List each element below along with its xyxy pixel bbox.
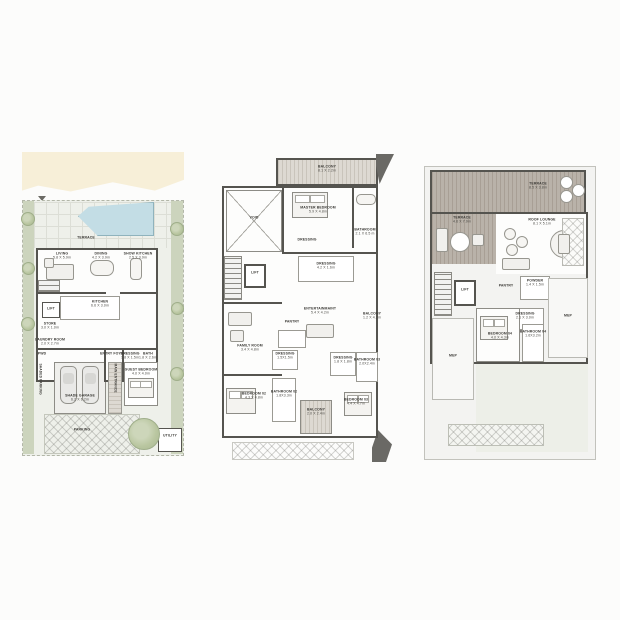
roof-lounge-label: ROOF LOUNGE8.1 X 5.1m <box>528 218 555 226</box>
tree-icon <box>22 262 35 275</box>
tree-icon <box>171 302 184 315</box>
garden-tree <box>128 418 160 450</box>
bathroom-03-label: BATHROOM 032.0X2.4m <box>354 358 380 366</box>
entertainment-label: ENTERTAINMAINT5.4 X 4.2m <box>304 307 336 315</box>
terrace-label: TERRACE <box>77 236 95 240</box>
guest-bed <box>128 378 154 398</box>
facade-fin <box>376 154 394 184</box>
pantry-area <box>278 330 306 348</box>
ff-dressing-a-label: DRESSING <box>297 238 316 242</box>
driveway <box>44 414 140 454</box>
tree-icon <box>21 317 35 331</box>
pouf <box>506 244 518 256</box>
tree-icon <box>170 367 184 381</box>
terrace-seat <box>472 234 484 246</box>
ground-floor-plan: TERRACE LIVING5.8 X 5.9m DINING4.2 X 3.9… <box>20 152 188 468</box>
gf-dressing-label: DRESSING1.8 X 1.5m <box>120 352 139 360</box>
ff-stairs <box>224 256 242 300</box>
stairs <box>38 280 60 292</box>
utility-box <box>158 428 182 452</box>
roof-lift-shaft <box>454 280 476 306</box>
bedroom-02-label: BEDROOM 024.3 X 4.8m <box>242 392 266 400</box>
landscape-strip-right <box>171 201 183 454</box>
kitchen-counter <box>60 296 120 320</box>
ff-pantry-label: PANTRY <box>285 320 300 324</box>
ff-balcony-bottom <box>300 400 332 434</box>
kitchen-label: KITCHEN6.6 X 3.0m <box>91 300 109 308</box>
first-floor-plan: BALCONY8.1 X 2.2m VOID MASTER BEDROOM5.9… <box>214 152 398 470</box>
dining-table <box>90 260 114 276</box>
gf-bath-label: BATH1.8 X 2.6m <box>139 352 157 360</box>
master-bedroom-label: MASTER BEDROOM5.9 X 4.8m <box>300 206 335 214</box>
roof-stairs <box>434 272 452 316</box>
ff-dressing-c-label: DRESSING1.5X1.5m <box>275 352 294 360</box>
island <box>130 258 142 280</box>
planter <box>560 176 573 189</box>
tree-icon <box>21 212 35 226</box>
mep-left-area <box>432 318 474 400</box>
shaded-parking-label: SHADED PARKING <box>38 363 42 394</box>
mep-right-area <box>548 278 588 358</box>
terrace-seat <box>436 228 448 252</box>
shade-garage-label: SHADE GARAGE6.2 X 6.2m <box>65 394 95 402</box>
sofa <box>228 312 252 326</box>
terrace-top-label: TERRACE8.5 X 3.8m <box>529 182 547 190</box>
lounger <box>558 234 570 254</box>
sofa <box>230 330 244 342</box>
planter <box>572 184 585 197</box>
lift-label: LIFT <box>47 307 55 311</box>
pouf <box>516 236 528 248</box>
ff-dressing-d-label: DRESSING1.8 X 1.8m <box>333 356 352 364</box>
main-entrance-label: MAIN ENTRANCE <box>113 364 117 393</box>
lounge-sofa <box>502 258 530 270</box>
bedroom-03-label: BEDROOM 034.4 X 4.7m <box>344 398 368 406</box>
bathroom-02-area <box>272 378 296 422</box>
pouf <box>504 228 516 240</box>
guest-bedroom-label: GUEST BEDROOM4.0 X 4.0m <box>125 368 158 376</box>
planter <box>560 190 573 203</box>
void-label: VOID <box>250 216 259 220</box>
show-kitchen-label: SHOW KITCHEN2.5 X 3.9m <box>124 252 153 260</box>
void-area <box>226 190 282 252</box>
roof-dressing-label: DRESSING2.1 X 3.0m <box>515 312 534 320</box>
bedroom-04-label: BEDROOM 044.0 X 4.3m <box>488 332 512 340</box>
bathroom-04-label: BATHROOM 041.6X3.2m <box>520 330 546 338</box>
ff-balcony-right-label: BALCONY1.2 X 4.2m <box>363 312 381 320</box>
ff-bathroom-label: BATHROOM2.1 X 6.5 m <box>354 228 375 236</box>
roof-hatch-panel <box>448 424 544 446</box>
bathtub <box>356 194 376 205</box>
ff-dressing-b-label: DRESSING4.2 X 1.6m <box>316 262 335 270</box>
sofa <box>306 324 334 338</box>
pwd-label: PWD <box>38 352 46 356</box>
mep-right-label: MEP <box>564 314 572 318</box>
lower-roof-strip <box>232 442 354 460</box>
ff-lift-shaft <box>244 264 266 288</box>
dining-label: DINING4.2 X 3.9m <box>92 252 110 260</box>
roof-floor-plan: TERRACE8.5 X 3.8m TERRACE4.6 X 7.9m ROOF… <box>424 166 598 462</box>
beach-area <box>22 152 184 194</box>
parking-label: PARKING <box>74 428 91 432</box>
ff-lift-label: LIFT <box>251 271 259 275</box>
ff-balcony-bottom-label: BALCONY2.0 X 2.4m <box>307 408 325 416</box>
laundry-label: LAUNDRY ROOM2.0 X 2.7m <box>35 338 65 346</box>
roof-pantry-label: PANTRY <box>499 284 514 288</box>
tree-icon <box>170 222 184 236</box>
round-table <box>450 232 470 252</box>
family-room-label: FAMILY ROOM3.4 X 4.8m <box>237 344 262 352</box>
terrace-left-label: TERRACE4.6 X 7.9m <box>453 216 471 224</box>
mep-left-label: MEP <box>449 354 457 358</box>
bathroom-02-label: BATHROOM 021.8X3.3m <box>271 390 297 398</box>
bathroom-03-area <box>356 352 378 382</box>
roof-powder-label: POWDER1.4 X 1.5m <box>526 279 544 287</box>
master-bed <box>292 192 328 218</box>
roof-lift-label: LIFT <box>461 288 469 292</box>
living-label: LIVING5.8 X 5.9m <box>53 252 71 260</box>
ff-balcony-top-label: BALCONY8.1 X 2.2m <box>318 165 336 173</box>
store-label: STORE3.0 X 1.0m <box>41 322 59 330</box>
utility-label: UTILITY <box>163 434 177 438</box>
